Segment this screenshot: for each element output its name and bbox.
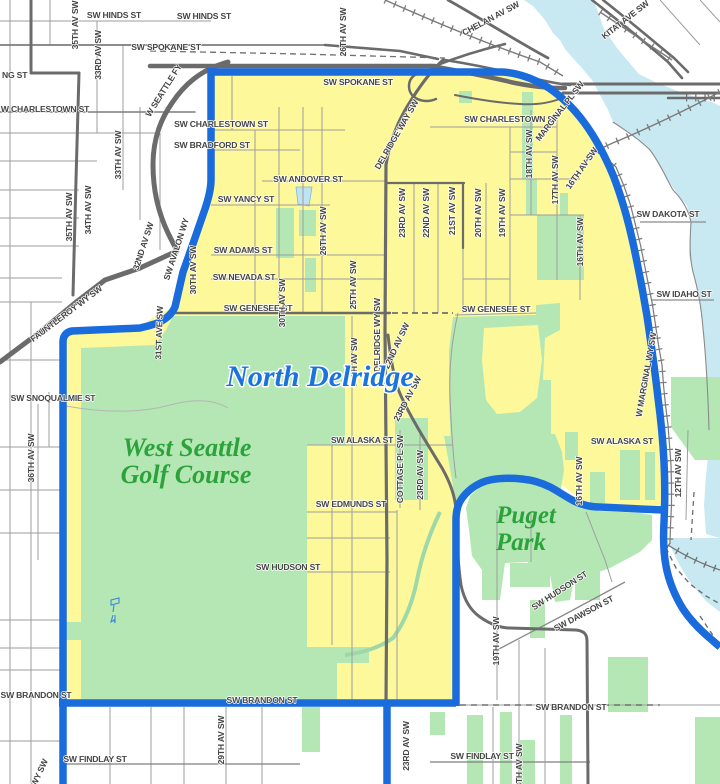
svg-text:SW HINDS ST: SW HINDS ST [177, 11, 232, 21]
svg-text:36TH AV SW: 36TH AV SW [26, 433, 36, 483]
svg-text:W CHARLESTOWN ST: W CHARLESTOWN ST [1, 104, 90, 114]
svg-text:SW FINDLAY ST: SW FINDLAY ST [63, 754, 127, 764]
svg-text:Puget: Puget [495, 502, 557, 529]
svg-text:18TH AV SW: 18TH AV SW [524, 129, 534, 179]
svg-text:SW SPOKANE ST: SW SPOKANE ST [323, 77, 393, 87]
svg-text:SW IDAHO ST: SW IDAHO ST [656, 289, 712, 299]
svg-text:16TH AV SW: 16TH AV SW [575, 217, 585, 267]
svg-text:Park: Park [495, 529, 547, 556]
svg-text:31ST AVE SW: 31ST AVE SW [153, 305, 165, 360]
svg-text:25TH AV SW: 25TH AV SW [348, 260, 358, 310]
svg-text:SW SPOKANE ST: SW SPOKANE ST [131, 42, 201, 52]
svg-text:12TH AV SW: 12TH AV SW [673, 448, 683, 498]
svg-text:26TH AV SW: 26TH AV SW [338, 7, 348, 57]
svg-text:33TH AV SW: 33TH AV SW [113, 130, 123, 180]
svg-text:COTTAGE PL SW: COTTAGE PL SW [395, 434, 405, 503]
svg-text:23RD AV SW: 23RD AV SW [415, 449, 425, 500]
svg-text:SW YANCY ST: SW YANCY ST [218, 194, 275, 204]
svg-text:SW HUDSON ST: SW HUDSON ST [256, 562, 321, 572]
svg-text:West Seattle: West Seattle [123, 433, 252, 462]
svg-text:35TH AV SW: 35TH AV SW [70, 0, 80, 49]
svg-text:SW NEVADA ST: SW NEVADA ST [213, 272, 276, 282]
svg-text:21ST AV SW: 21ST AV SW [447, 186, 457, 235]
svg-text:SW BRANDON ST: SW BRANDON ST [536, 702, 608, 712]
svg-text:SW ADAMS ST: SW ADAMS ST [214, 245, 274, 255]
svg-text:NG ST: NG ST [2, 70, 28, 80]
svg-text:SW BRANDON ST: SW BRANDON ST [1, 690, 73, 700]
svg-text:SW BRANDON ST: SW BRANDON ST [227, 695, 299, 705]
svg-text:North Delridge: North Delridge [225, 360, 414, 393]
svg-text:26TH AV SW: 26TH AV SW [318, 206, 328, 256]
svg-text:23RD AV SW: 23RD AV SW [397, 187, 407, 238]
svg-text:30TH AV SW: 30TH AV SW [277, 278, 287, 328]
svg-text:SW EDMUNDS ST: SW EDMUNDS ST [316, 499, 387, 509]
svg-text:SW ALASKA ST: SW ALASKA ST [331, 435, 394, 445]
svg-text:29TH AV SW: 29TH AV SW [216, 715, 226, 765]
svg-text:16TH AV SW: 16TH AV SW [574, 456, 584, 506]
svg-text:SW SNOQUALMIE ST: SW SNOQUALMIE ST [11, 393, 97, 403]
svg-text:34TH AV SW: 34TH AV SW [83, 185, 93, 235]
svg-text:SW DAKOTA ST: SW DAKOTA ST [636, 209, 700, 219]
svg-text:SW BRADFORD ST: SW BRADFORD ST [174, 140, 251, 150]
svg-text:20TH AV SW: 20TH AV SW [473, 188, 483, 238]
svg-text:SW CHARLESTOWN ST: SW CHARLESTOWN ST [174, 119, 269, 129]
svg-text:17TH AV SW: 17TH AV SW [550, 155, 560, 205]
svg-text:35TH AV SW: 35TH AV SW [64, 192, 74, 242]
svg-text:22ND AV SW: 22ND AV SW [421, 187, 431, 238]
svg-text:SW HINDS ST: SW HINDS ST [87, 10, 142, 20]
svg-text:33RD AV SW: 33RD AV SW [93, 29, 103, 80]
svg-text:SW FINDLAY ST: SW FINDLAY ST [450, 751, 514, 761]
svg-text:Golf Course: Golf Course [121, 460, 252, 489]
svg-text:SW ALASKA ST: SW ALASKA ST [591, 436, 654, 446]
svg-text:30TH AV SW: 30TH AV SW [188, 245, 198, 295]
svg-text:23RD AV SW: 23RD AV SW [401, 720, 411, 771]
svg-text:SW ANDOVER ST: SW ANDOVER ST [273, 174, 344, 184]
svg-text:SW GENESEE ST: SW GENESEE ST [462, 304, 532, 314]
svg-text:19TH AV SW: 19TH AV SW [491, 616, 501, 666]
svg-text:18TH AV SW: 18TH AV SW [514, 743, 524, 784]
svg-text:19TH AV SW: 19TH AV SW [497, 188, 507, 238]
